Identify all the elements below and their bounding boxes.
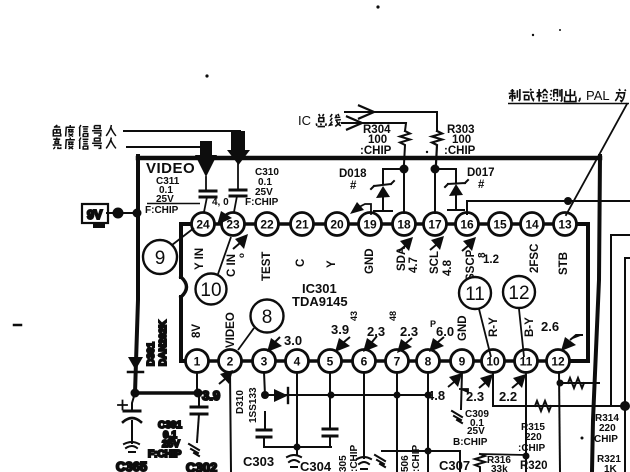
svg-text:506: 506 (400, 455, 411, 472)
svg-text:R320: R320 (520, 460, 548, 472)
svg-text:2FSC: 2FSC (529, 244, 541, 273)
svg-text::CHIP: :CHIP (349, 444, 360, 472)
svg-text:19: 19 (363, 218, 377, 232)
svg-text:1K: 1K (604, 464, 618, 472)
svg-text:9: 9 (459, 355, 466, 369)
svg-text:9V: 9V (87, 208, 103, 222)
svg-text:PAL: PAL (586, 88, 610, 103)
svg-text:15: 15 (493, 218, 507, 232)
svg-text:TEST: TEST (261, 252, 273, 281)
svg-text:3.9: 3.9 (331, 322, 349, 337)
svg-text:220: 220 (525, 432, 542, 443)
svg-text:C302: C302 (186, 460, 217, 472)
svg-text:16: 16 (460, 218, 474, 232)
svg-text:VIDEO: VIDEO (146, 160, 195, 177)
svg-text:33k: 33k (491, 464, 508, 472)
svg-text:4: 4 (294, 355, 301, 369)
svg-text:Y IN: Y IN (194, 248, 206, 270)
svg-text:6: 6 (361, 355, 368, 369)
svg-text:STB: STB (558, 252, 570, 275)
svg-text:CHIP: CHIP (594, 434, 618, 445)
svg-text:3.0: 3.0 (284, 333, 302, 348)
svg-text:D018: D018 (339, 168, 367, 180)
svg-text:25V: 25V (467, 426, 485, 437)
svg-text:14: 14 (525, 218, 539, 232)
svg-text:2: 2 (227, 355, 234, 369)
svg-text:3: 3 (261, 355, 268, 369)
svg-text:C303: C303 (243, 454, 274, 469)
svg-text:DAN202K: DAN202K (158, 320, 169, 366)
svg-text:25V: 25V (255, 187, 273, 198)
svg-text:12: 12 (508, 283, 529, 304)
svg-text:4, 0: 4, 0 (212, 197, 229, 208)
svg-text:GND: GND (457, 315, 469, 341)
svg-text:#: # (350, 180, 357, 192)
svg-text:305: 305 (338, 455, 349, 472)
svg-text:9: 9 (155, 248, 166, 269)
svg-text:B:CHIP: B:CHIP (453, 437, 488, 448)
svg-text:24: 24 (196, 218, 210, 232)
svg-text:1: 1 (194, 355, 201, 369)
svg-text:8: 8 (425, 355, 432, 369)
svg-text:1SS133: 1SS133 (248, 387, 259, 423)
svg-text:13: 13 (558, 218, 572, 232)
svg-text:12: 12 (551, 355, 565, 369)
svg-text:R-Y: R-Y (488, 317, 500, 337)
svg-text:4.8: 4.8 (442, 259, 454, 276)
svg-text::CHIP: :CHIP (518, 443, 546, 454)
svg-text:2.6: 2.6 (541, 319, 559, 334)
svg-text:F:CHIP: F:CHIP (245, 197, 279, 208)
svg-text:F:CHIP: F:CHIP (148, 449, 182, 460)
svg-text:3.9: 3.9 (202, 388, 220, 403)
svg-text:10: 10 (200, 280, 221, 301)
svg-text:2.2: 2.2 (499, 389, 517, 404)
svg-text:D310: D310 (235, 390, 246, 414)
svg-text:VIDEO: VIDEO (225, 312, 237, 348)
svg-text:22: 22 (260, 218, 274, 232)
svg-text:B-Y: B-Y (524, 317, 536, 337)
svg-text:D301: D301 (146, 342, 157, 366)
svg-text:8V: 8V (191, 324, 203, 338)
svg-text:C307: C307 (439, 458, 470, 472)
svg-text::CHIP: :CHIP (411, 444, 422, 472)
svg-text:11: 11 (465, 284, 485, 305)
svg-text:C304: C304 (300, 459, 332, 472)
svg-text:2.3: 2.3 (400, 324, 418, 339)
svg-text:4.7: 4.7 (408, 257, 420, 273)
svg-text:D017: D017 (467, 167, 495, 179)
svg-text:C365: C365 (116, 459, 147, 472)
svg-text:11: 11 (520, 355, 533, 369)
svg-text:#: # (478, 179, 485, 191)
svg-text:20: 20 (330, 218, 344, 232)
svg-text:C: C (295, 259, 307, 267)
svg-text:o: o (237, 253, 246, 258)
svg-text:Y: Y (326, 260, 338, 268)
svg-text:17: 17 (428, 218, 442, 232)
svg-text:7: 7 (394, 355, 401, 369)
svg-text:8: 8 (262, 307, 273, 328)
svg-text:TDA9145: TDA9145 (292, 294, 348, 309)
svg-text:21: 21 (295, 218, 309, 232)
svg-text:220: 220 (599, 423, 616, 434)
svg-text:1.2: 1.2 (483, 254, 499, 266)
svg-text:GND: GND (364, 248, 376, 274)
svg-text:SCL: SCL (429, 251, 441, 274)
svg-text:IC: IC (298, 113, 311, 128)
svg-text:43: 43 (349, 311, 359, 321)
svg-text:SDA: SDA (396, 247, 408, 271)
svg-text:F:CHIP: F:CHIP (145, 205, 179, 216)
svg-text:6.0: 6.0 (436, 324, 454, 339)
svg-text::CHIP: :CHIP (360, 145, 392, 157)
svg-text:18: 18 (397, 218, 411, 232)
svg-text:10: 10 (486, 355, 500, 369)
svg-text:48: 48 (388, 311, 398, 321)
svg-text:5: 5 (327, 355, 334, 369)
svg-text::CHIP: :CHIP (444, 145, 476, 157)
